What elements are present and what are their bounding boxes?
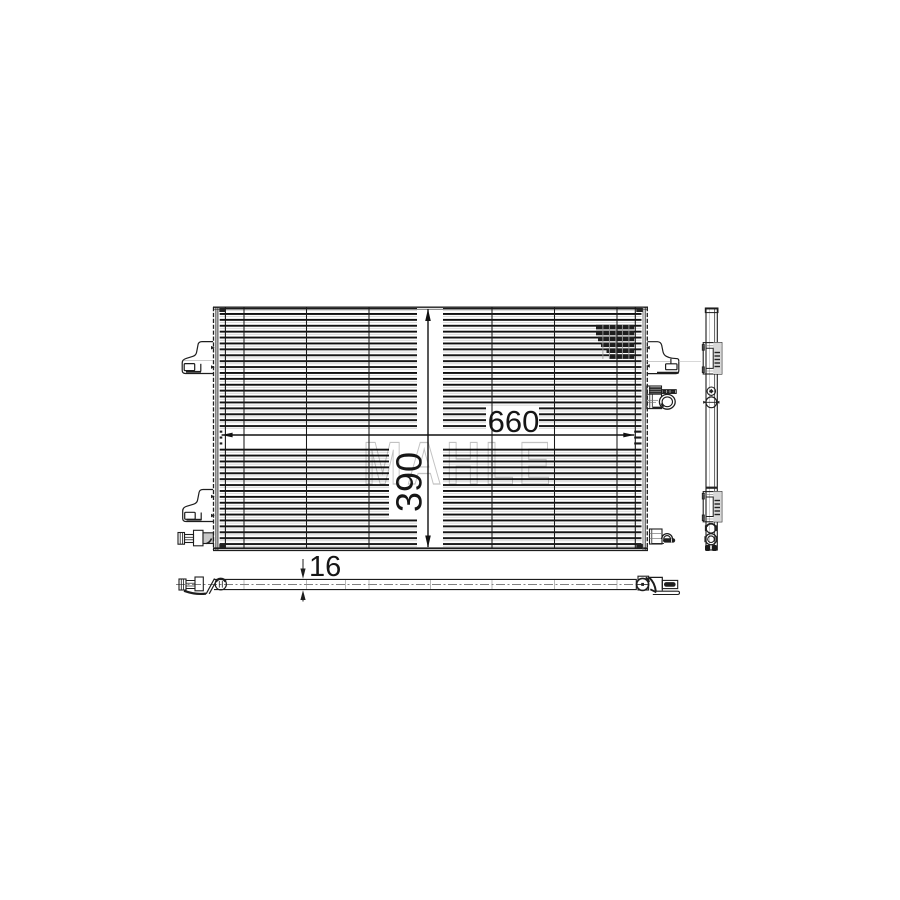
svg-text:390: 390 — [389, 452, 430, 512]
svg-text:660: 660 — [488, 404, 540, 439]
svg-text:16: 16 — [309, 551, 341, 583]
